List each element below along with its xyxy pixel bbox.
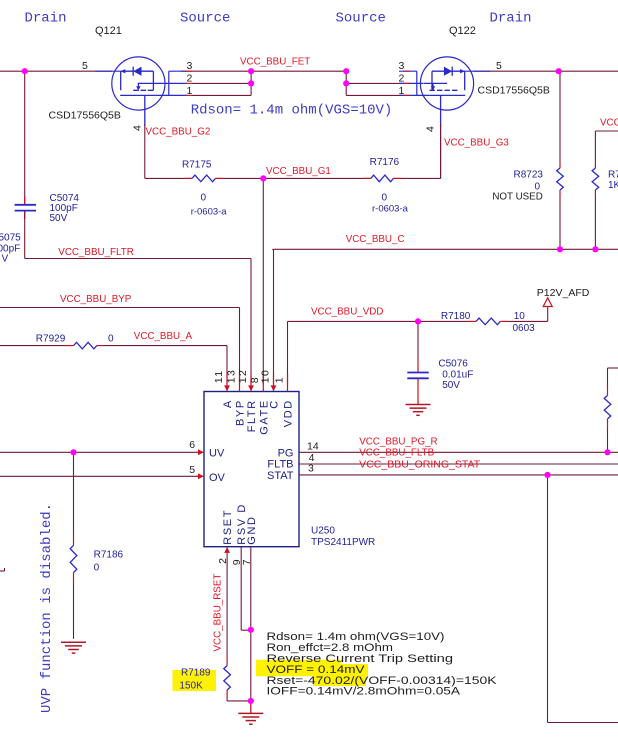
svg-text:IOFF=0.14mV/2.8mOhm=0.05A: IOFF=0.14mV/2.8mOhm=0.05A — [267, 686, 461, 698]
svg-text:TPS2411PWR: TPS2411PWR — [311, 537, 375, 548]
svg-text:OV: OV — [209, 472, 226, 484]
svg-text:Q121: Q121 — [95, 25, 122, 37]
svg-text:Drain: Drain — [490, 11, 532, 27]
svg-text:CSD17556Q5B: CSD17556Q5B — [478, 85, 550, 97]
svg-text:r-0603-a: r-0603-a — [372, 204, 409, 215]
svg-text:UVP function is disabled.: UVP function is disabled. — [39, 503, 55, 713]
svg-text:CSD17556Q5B: CSD17556Q5B — [49, 110, 121, 122]
svg-text:R7180: R7180 — [441, 311, 471, 322]
svg-text:150K: 150K — [179, 681, 203, 692]
svg-text:1: 1 — [273, 376, 285, 383]
svg-text:UV: UV — [209, 448, 225, 460]
svg-text:5: 5 — [82, 60, 88, 72]
svg-text:VCC_BBU_G2: VCC_BBU_G2 — [146, 126, 211, 137]
svg-text:VCC_BBU_G1: VCC_BBU_G1 — [266, 166, 331, 177]
svg-text:VCC_BBU_VDD: VCC_BBU_VDD — [311, 307, 383, 318]
svg-text:2: 2 — [399, 73, 405, 85]
svg-text:1K: 1K — [608, 180, 618, 191]
svg-text:0603: 0603 — [513, 323, 536, 334]
svg-text:12: 12 — [237, 369, 249, 383]
svg-text:4: 4 — [425, 126, 437, 132]
svg-text:3: 3 — [399, 60, 405, 72]
svg-text:14: 14 — [307, 440, 319, 452]
svg-text:FLTR: FLTR — [246, 399, 258, 432]
svg-text:VCC_BBU_PG_R: VCC_BBU_PG_R — [359, 436, 437, 447]
svg-text:Drain: Drain — [25, 11, 67, 27]
svg-text:50V: 50V — [442, 380, 460, 391]
svg-text:3: 3 — [187, 60, 193, 72]
svg-text:1: 1 — [187, 85, 193, 97]
svg-text:STAT: STAT — [267, 470, 294, 482]
svg-text:VCC_BBU_A: VCC_BBU_A — [134, 331, 193, 342]
svg-text:1: 1 — [399, 85, 405, 97]
svg-text:7: 7 — [241, 559, 253, 565]
svg-text:R7176: R7176 — [370, 157, 400, 168]
svg-text:VCC_BBU_G3: VCC_BBU_G3 — [444, 138, 509, 149]
svg-text:GND: GND — [246, 515, 258, 544]
svg-text:0.01uF: 0.01uF — [442, 370, 473, 381]
svg-text:10: 10 — [514, 311, 526, 322]
svg-text:VCC_BBU_C: VCC_BBU_C — [346, 234, 405, 245]
svg-text:0: 0 — [94, 563, 100, 574]
svg-text:VDD: VDD — [283, 399, 295, 427]
svg-text:RSET: RSET — [222, 509, 234, 545]
svg-text:C: C — [269, 399, 281, 409]
svg-text:2: 2 — [187, 73, 193, 85]
svg-text:P12V_AFD: P12V_AFD — [537, 287, 590, 299]
svg-text:11: 11 — [213, 369, 225, 383]
svg-text:FLTB: FLTB — [267, 458, 293, 470]
svg-text:r-0603-a: r-0603-a — [191, 207, 228, 218]
svg-text:10: 10 — [259, 369, 271, 383]
svg-text:5: 5 — [496, 60, 502, 72]
svg-text:0: 0 — [108, 334, 114, 345]
svg-text:R7175: R7175 — [182, 160, 212, 171]
svg-text:R7189: R7189 — [181, 667, 211, 678]
svg-text:0: 0 — [201, 193, 207, 204]
svg-text:NOT USED: NOT USED — [492, 192, 542, 203]
svg-text:VCC_BBU_RSET: VCC_BBU_RSET — [213, 574, 224, 652]
svg-text:VCC_BBU_FLTB: VCC_BBU_FLTB — [359, 448, 434, 459]
svg-text:Source: Source — [336, 11, 386, 27]
svg-text:VCC_BBU_FLTR: VCC_BBU_FLTR — [58, 247, 134, 258]
svg-text:Source: Source — [180, 11, 230, 27]
svg-text:R7186: R7186 — [94, 549, 124, 560]
svg-text:R7929: R7929 — [36, 334, 66, 345]
svg-text:VCC_BBU_BYP: VCC_BBU_BYP — [60, 294, 132, 305]
svg-text:V: V — [2, 254, 9, 265]
svg-text:6: 6 — [189, 439, 195, 451]
svg-text:U250: U250 — [311, 525, 335, 536]
svg-text:5: 5 — [189, 464, 195, 476]
svg-text:4: 4 — [132, 125, 144, 131]
svg-text:VCC_BB: VCC_BB — [600, 117, 618, 128]
svg-text:13: 13 — [225, 369, 237, 383]
svg-text:5075: 5075 — [0, 233, 21, 244]
svg-text:Rdson= 1.4m ohm(VGS=10V): Rdson= 1.4m ohm(VGS=10V) — [191, 103, 393, 119]
svg-text:0: 0 — [382, 193, 388, 204]
svg-text:BYP: BYP — [235, 399, 247, 426]
svg-text:A: A — [222, 399, 234, 408]
svg-text:VCC_BBU_ORING_STAT: VCC_BBU_ORING_STAT — [359, 459, 480, 470]
svg-text:C5076: C5076 — [438, 359, 468, 370]
svg-text:50V: 50V — [50, 213, 68, 224]
svg-text:3: 3 — [308, 462, 314, 474]
svg-text:2: 2 — [217, 558, 229, 564]
svg-text:VCC_BBU_FET: VCC_BBU_FET — [240, 57, 310, 68]
svg-text:R8723: R8723 — [514, 170, 544, 181]
svg-text:Q122: Q122 — [449, 25, 476, 37]
svg-text:R71: R71 — [608, 170, 618, 181]
